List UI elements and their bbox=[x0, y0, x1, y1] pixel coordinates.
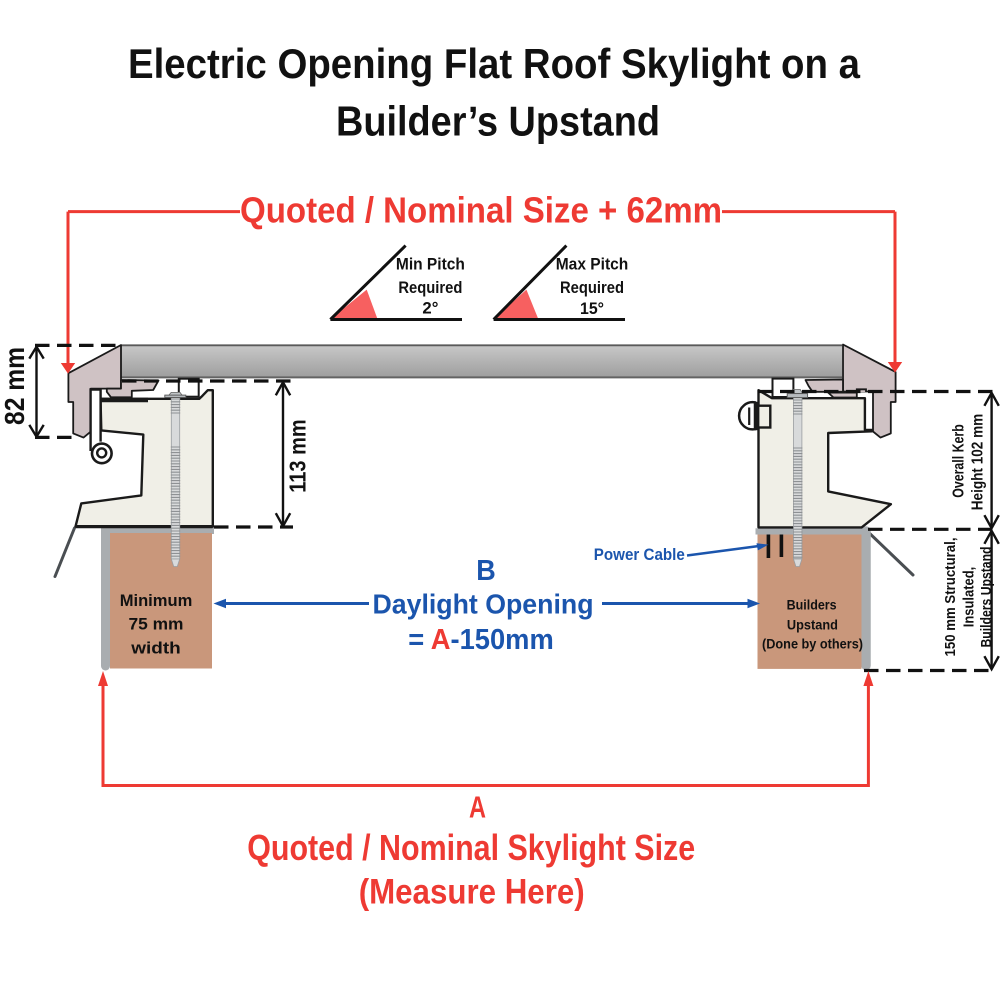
svg-text:Overall Kerb: Overall Kerb bbox=[951, 424, 968, 498]
svg-text:Upstand: Upstand bbox=[787, 616, 838, 632]
svg-text:(Done by others): (Done by others) bbox=[762, 636, 863, 652]
svg-text:Required: Required bbox=[560, 278, 624, 297]
svg-text:Builders: Builders bbox=[787, 597, 837, 613]
svg-text:2°: 2° bbox=[422, 299, 438, 318]
svg-text:Minimum: Minimum bbox=[120, 591, 193, 610]
svg-text:Builders Upstand: Builders Upstand bbox=[978, 547, 995, 648]
svg-text:B: B bbox=[476, 555, 496, 587]
svg-text:Builder’s Upstand: Builder’s Upstand bbox=[336, 98, 660, 145]
svg-text:Quoted / Nominal Size + 62mm: Quoted / Nominal Size + 62mm bbox=[240, 190, 722, 231]
svg-text:Electric Opening Flat Roof Sky: Electric Opening Flat Roof Skylight on a bbox=[128, 40, 861, 87]
svg-text:Daylight Opening: Daylight Opening bbox=[373, 589, 594, 620]
svg-text:(Measure Here): (Measure Here) bbox=[359, 873, 585, 912]
svg-text:Insulated,: Insulated, bbox=[961, 567, 978, 628]
svg-text:width: width bbox=[130, 639, 181, 658]
svg-text:Height 102 mm: Height 102 mm bbox=[970, 414, 987, 511]
svg-text:150 mm Structural,: 150 mm Structural, bbox=[942, 538, 959, 657]
svg-text:Min Pitch: Min Pitch bbox=[396, 255, 465, 274]
svg-text:Quoted / Nominal Skylight Size: Quoted / Nominal Skylight Size bbox=[247, 827, 695, 868]
svg-text:= A-150mm: = A-150mm bbox=[408, 624, 554, 656]
svg-text:113 mm: 113 mm bbox=[285, 419, 311, 493]
svg-text:Required: Required bbox=[398, 278, 462, 297]
svg-text:Max Pitch: Max Pitch bbox=[556, 255, 629, 274]
svg-text:82 mm: 82 mm bbox=[0, 347, 30, 425]
svg-text:75 mm: 75 mm bbox=[129, 615, 184, 634]
svg-text:Power Cable: Power Cable bbox=[594, 545, 685, 564]
svg-text:15°: 15° bbox=[580, 299, 604, 318]
svg-text:A: A bbox=[469, 790, 486, 825]
